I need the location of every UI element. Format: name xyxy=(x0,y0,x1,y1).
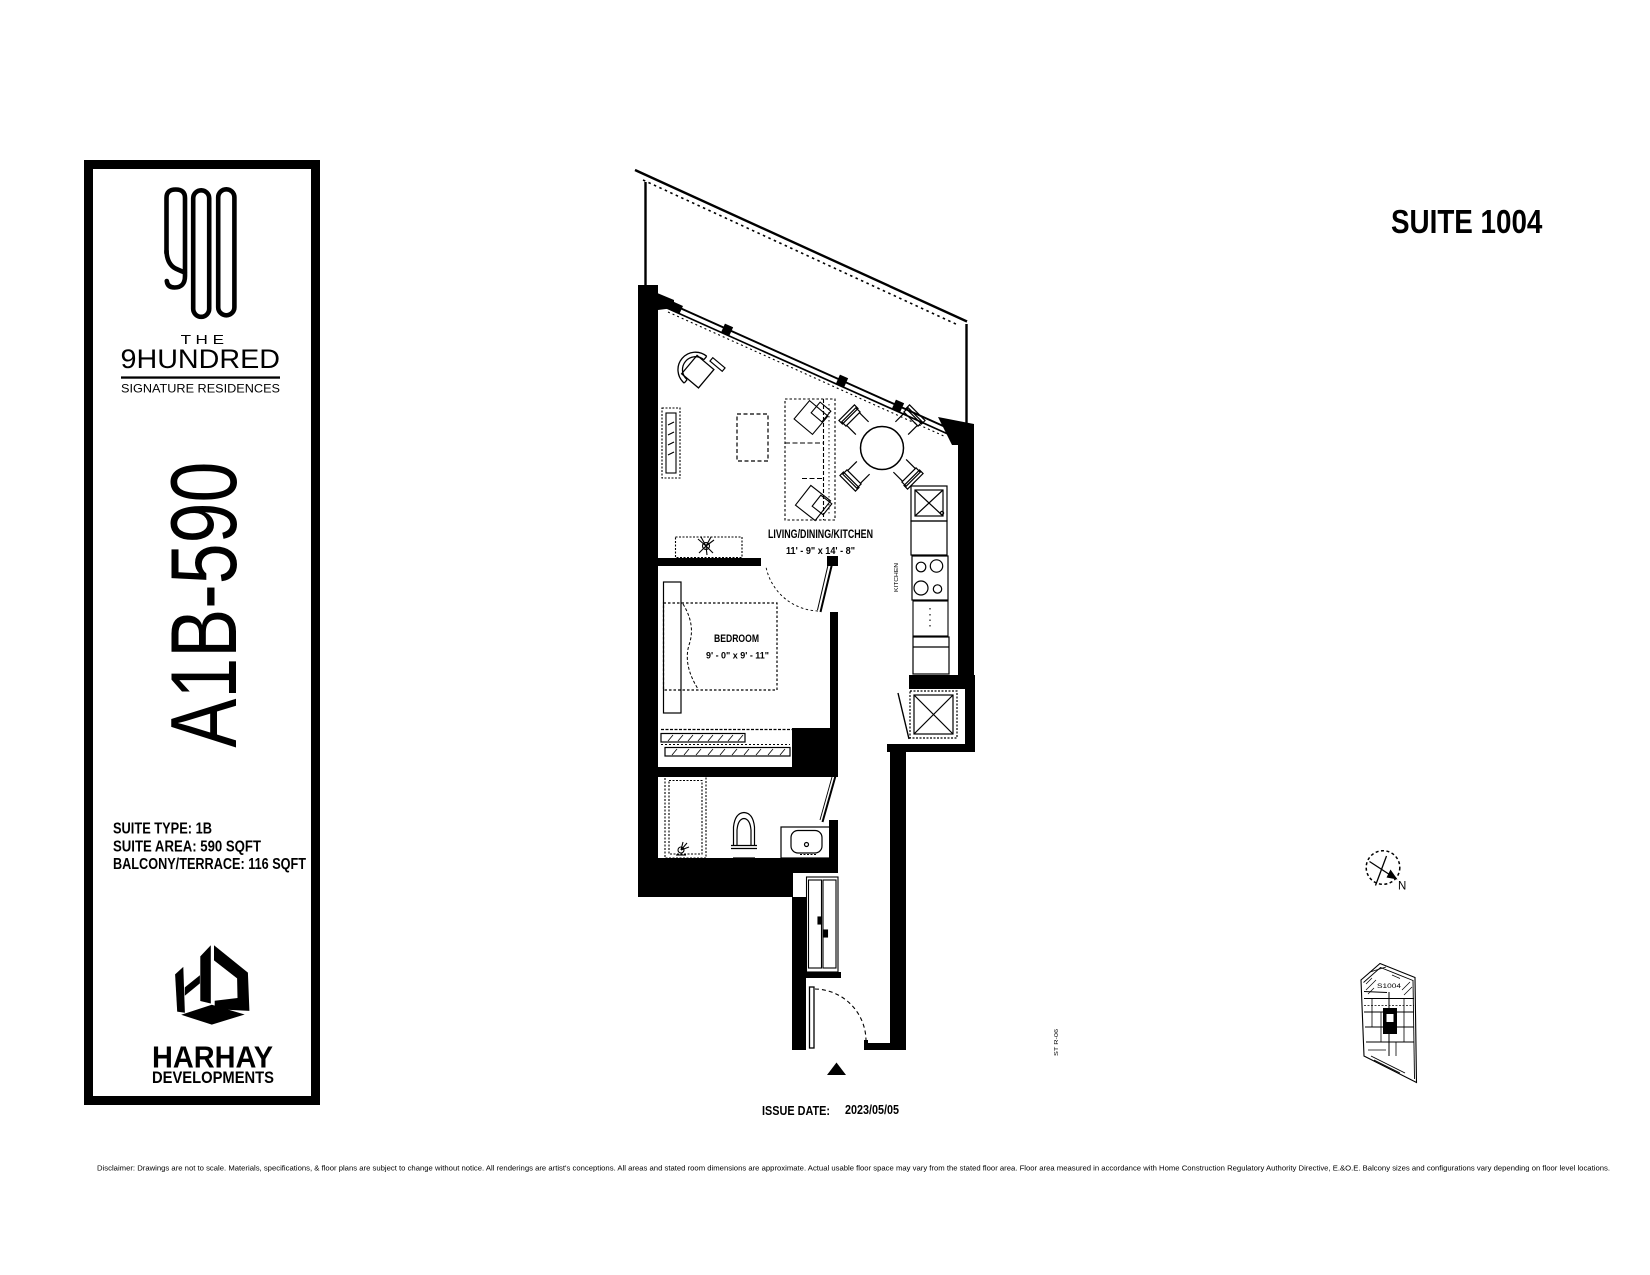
svg-text:SUITE TYPE: 1B: SUITE TYPE: 1B xyxy=(113,821,212,838)
svg-text:11' - 9" x 14' - 8": 11' - 9" x 14' - 8" xyxy=(786,546,855,557)
svg-text:SUITE 1004: SUITE 1004 xyxy=(1391,203,1542,241)
svg-text:ISSUE DATE:: ISSUE DATE: xyxy=(762,1103,830,1118)
svg-text:BALCONY/TERRACE: 116 SQFT: BALCONY/TERRACE: 116 SQFT xyxy=(113,856,306,873)
svg-text:S1004: S1004 xyxy=(1377,983,1401,990)
svg-text:2023/05/05: 2023/05/05 xyxy=(845,1102,899,1117)
svg-text:BEDROOM: BEDROOM xyxy=(714,633,759,645)
svg-text:A1B-590: A1B-590 xyxy=(151,462,256,748)
svg-text:DEVELOPMENTS: DEVELOPMENTS xyxy=(152,1069,274,1087)
svg-text:9' - 0" x 9' - 11": 9' - 0" x 9' - 11" xyxy=(706,651,769,662)
svg-text:SUITE AREA: 590 SQFT: SUITE AREA: 590 SQFT xyxy=(113,839,261,856)
svg-text:9HUNDRED: 9HUNDRED xyxy=(121,344,281,374)
svg-text:ST R-06: ST R-06 xyxy=(1054,1029,1060,1056)
svg-text:KITCHEN: KITCHEN xyxy=(894,563,900,592)
svg-text:N: N xyxy=(1398,881,1406,893)
svg-text:LIVING/DINING/KITCHEN: LIVING/DINING/KITCHEN xyxy=(768,528,873,541)
svg-text:SIGNATURE RESIDENCES: SIGNATURE RESIDENCES xyxy=(121,382,280,396)
svg-text:Disclaimer: Drawings are not t: Disclaimer: Drawings are not to scale. M… xyxy=(97,1164,1610,1173)
